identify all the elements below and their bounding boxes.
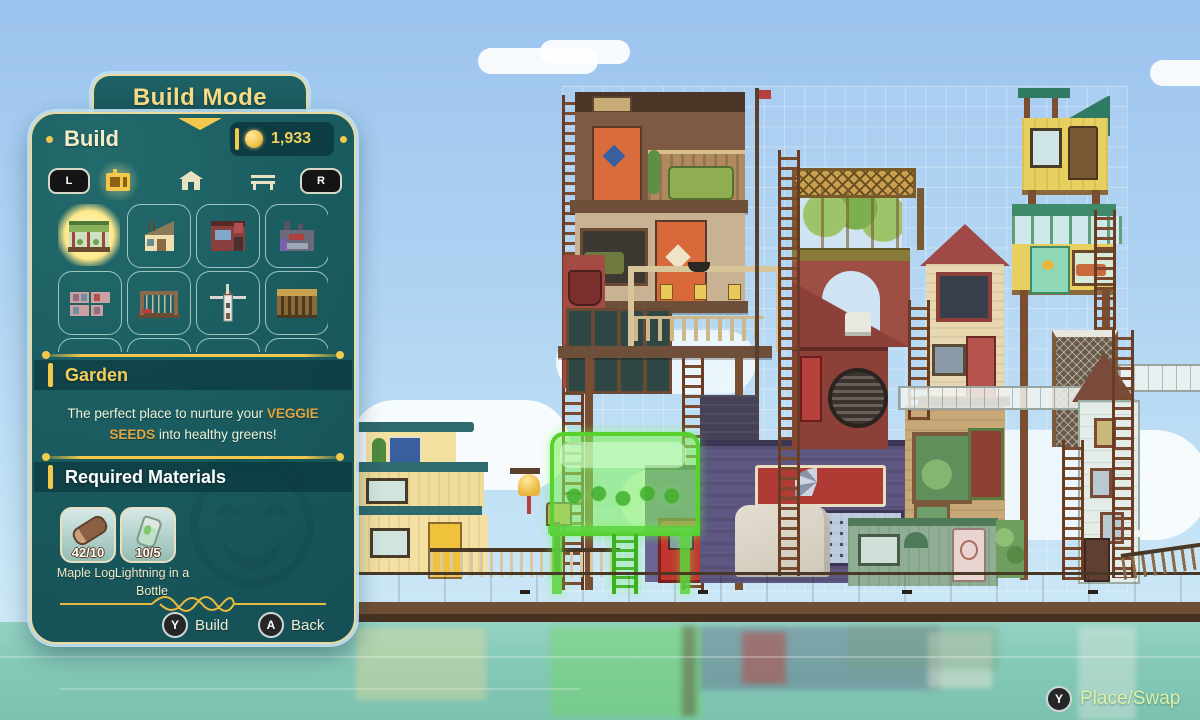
log-icon bbox=[70, 513, 111, 548]
windmill-blade-left bbox=[898, 386, 1084, 410]
item-slot-cellar[interactable] bbox=[265, 271, 328, 335]
material-count: 10/5 bbox=[122, 545, 174, 560]
cactus bbox=[648, 150, 660, 194]
roof-post bbox=[1024, 98, 1030, 120]
ghost-plants bbox=[562, 472, 684, 520]
item-slot-foundry[interactable] bbox=[265, 204, 328, 268]
deck-cleat bbox=[698, 590, 708, 594]
ladder bbox=[1112, 330, 1134, 578]
currency-accent-bar bbox=[235, 128, 239, 150]
deck-cleat bbox=[902, 590, 912, 594]
ghost-canopy bbox=[560, 442, 686, 468]
currency-display: 1,933 bbox=[230, 122, 334, 156]
deck-cleat bbox=[520, 590, 530, 594]
item-slot[interactable] bbox=[58, 338, 122, 352]
item-slot-coop[interactable] bbox=[58, 271, 122, 335]
material-count: 42/10 bbox=[62, 545, 114, 560]
deck-cleat bbox=[1088, 590, 1098, 594]
ship-deck bbox=[352, 572, 1200, 605]
seagull bbox=[1134, 530, 1143, 537]
reflection-garden-ghost bbox=[550, 626, 702, 718]
windmill-thumbnail bbox=[208, 283, 248, 323]
house-icon bbox=[178, 170, 204, 192]
material-card-maple-log: 42/10 bbox=[60, 507, 116, 563]
door-emblem bbox=[1042, 260, 1054, 270]
garden-placement-ghost[interactable] bbox=[548, 420, 702, 594]
lower-window bbox=[932, 344, 966, 376]
gold-accent-bar bbox=[48, 363, 53, 387]
category-tab-houses[interactable] bbox=[174, 166, 208, 196]
wheelhouse-eave2 bbox=[352, 506, 482, 515]
category-tab-furniture[interactable] bbox=[246, 166, 280, 196]
y-button-icon: Y bbox=[162, 612, 188, 638]
required-materials-band: Required Materials bbox=[34, 462, 352, 492]
category-tab-buildings[interactable] bbox=[94, 162, 142, 200]
place-swap-hint: Y Place/Swap bbox=[1046, 686, 1180, 712]
item-slot[interactable] bbox=[127, 338, 191, 352]
build-tab-title: Build bbox=[64, 126, 119, 152]
mast-pole bbox=[755, 88, 759, 443]
tower1-roof-picture bbox=[592, 96, 632, 113]
shoulder-left-button[interactable]: L bbox=[48, 168, 90, 194]
build-mode-title: Build Mode bbox=[133, 84, 267, 112]
reflection-ladder bbox=[682, 626, 696, 716]
floor-slab bbox=[558, 346, 772, 358]
coop-thumbnail bbox=[68, 286, 112, 320]
item-slot-house[interactable] bbox=[127, 204, 191, 268]
windmill-window bbox=[1090, 468, 1112, 498]
goat-plaque bbox=[568, 270, 602, 306]
decorative-flourish bbox=[56, 588, 330, 614]
water-shimmer bbox=[0, 656, 1200, 658]
flag bbox=[759, 90, 771, 99]
header-notch bbox=[178, 118, 222, 130]
gold-divider bbox=[46, 354, 340, 357]
wheelhouse-window2 bbox=[370, 528, 410, 558]
item-slot-kitchen[interactable] bbox=[196, 204, 260, 268]
top-house-door bbox=[1068, 126, 1098, 180]
back-action[interactable]: A Back bbox=[258, 612, 324, 638]
selected-item-name: Garden bbox=[65, 365, 128, 386]
bell-bracket bbox=[510, 468, 540, 474]
lookout-figure bbox=[372, 438, 386, 464]
pen-target bbox=[728, 284, 741, 300]
loom-thumbnail bbox=[136, 285, 182, 321]
cloud bbox=[540, 40, 630, 64]
item-slot[interactable] bbox=[265, 338, 328, 352]
selected-item-band: Garden bbox=[34, 360, 352, 390]
pen-target bbox=[694, 284, 707, 300]
place-swap-label: Place/Swap bbox=[1080, 688, 1180, 710]
ship-hull bbox=[352, 602, 1200, 624]
garden-thumbnail bbox=[66, 216, 112, 254]
couch-green bbox=[668, 166, 734, 200]
lookout-painting bbox=[388, 436, 422, 464]
build-panel: Build 1,933 L R bbox=[30, 112, 356, 644]
gold-dot bbox=[46, 136, 53, 143]
buildings-icon bbox=[103, 168, 133, 194]
required-materials-title: Required Materials bbox=[65, 467, 226, 488]
pen-target bbox=[660, 284, 673, 300]
patio-table bbox=[845, 312, 871, 336]
ghost-beam bbox=[548, 526, 698, 534]
kitchen-thumbnail bbox=[207, 217, 249, 255]
cloud bbox=[1150, 60, 1200, 86]
ladder bbox=[778, 150, 800, 576]
ladder bbox=[1094, 210, 1116, 330]
item-slot-windmill[interactable] bbox=[196, 271, 260, 335]
leafy-wall bbox=[996, 520, 1024, 578]
desc-before: The perfect place to nurture your bbox=[67, 406, 267, 421]
gold-dot bbox=[340, 136, 347, 143]
gold-accent-bar bbox=[48, 465, 53, 489]
item-slot-garden-selected[interactable] bbox=[58, 204, 120, 266]
deer-door bbox=[968, 428, 1004, 500]
y-button-icon: Y bbox=[1046, 686, 1072, 712]
orchard-frame bbox=[792, 188, 924, 250]
cellar-thumbnail bbox=[275, 285, 319, 321]
floor-slab bbox=[570, 200, 748, 213]
item-slot[interactable] bbox=[196, 338, 260, 352]
ladder bbox=[1062, 440, 1084, 580]
water-shimmer bbox=[60, 688, 580, 690]
pen-fence bbox=[634, 316, 764, 341]
cabin-window bbox=[858, 534, 900, 566]
bench-icon bbox=[249, 171, 277, 191]
build-action[interactable]: Y Build bbox=[162, 612, 228, 638]
house-thumbnail bbox=[138, 217, 180, 255]
reflection-cabin bbox=[848, 626, 998, 670]
top-house-window bbox=[1030, 128, 1062, 168]
item-slot-loom[interactable] bbox=[127, 271, 191, 335]
currency-amount: 1,933 bbox=[271, 130, 311, 148]
attic-window bbox=[936, 272, 992, 322]
wheelhouse-eave bbox=[352, 462, 488, 472]
desc-after: into healthy greens! bbox=[155, 427, 277, 442]
orange-door bbox=[592, 126, 642, 204]
bell-tassel bbox=[527, 496, 531, 514]
red-column-door bbox=[800, 356, 822, 422]
door-oval-sign bbox=[960, 540, 978, 560]
blueprint-grid bbox=[58, 204, 328, 352]
gold-divider bbox=[46, 456, 340, 459]
house-roof bbox=[920, 224, 1010, 266]
back-action-label: Back bbox=[291, 617, 324, 634]
glim-coin-icon bbox=[245, 130, 263, 148]
reflection-red-door bbox=[742, 632, 786, 684]
item-description: The perfect place to nurture your VEGGIE… bbox=[56, 404, 330, 446]
round-vent bbox=[828, 368, 888, 428]
foundry-sign-fan bbox=[795, 468, 839, 496]
ship-bell bbox=[518, 474, 540, 496]
lodge-mint-door bbox=[1030, 246, 1070, 294]
wheelhouse-lookout-roof bbox=[356, 422, 474, 432]
a-button-icon: A bbox=[258, 612, 284, 638]
material-card-lightning-bottle: 10/5 bbox=[120, 507, 176, 563]
wheelhouse-window bbox=[366, 478, 408, 504]
shoulder-right-button[interactable]: R bbox=[300, 168, 342, 194]
foundry-thumbnail bbox=[276, 217, 318, 255]
green-window-large bbox=[912, 432, 972, 504]
build-action-label: Build bbox=[195, 617, 228, 634]
